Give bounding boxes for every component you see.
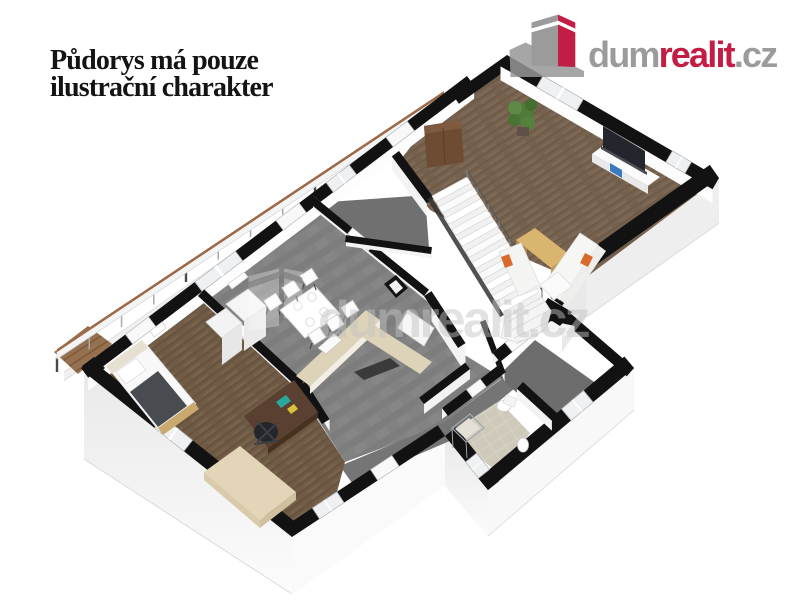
svg-text:ilustrační charakter: ilustrační charakter — [50, 72, 273, 103]
svg-text:dumrealit.cz: dumrealit.cz — [318, 291, 590, 349]
svg-text:dumrealit.cz: dumrealit.cz — [588, 34, 777, 75]
